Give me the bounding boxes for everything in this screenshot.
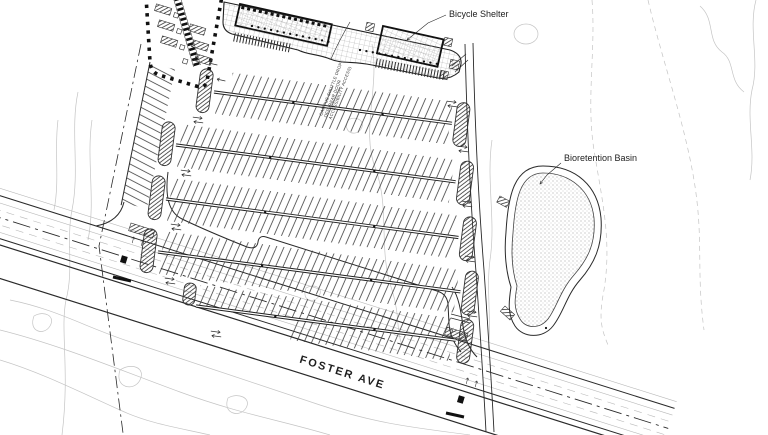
traffic-arrow <box>170 223 182 232</box>
bench-marker <box>446 413 464 417</box>
pedestrian-arrow <box>474 380 479 387</box>
parking-island <box>195 68 214 113</box>
bicycle-shelter-label: Bicycle Shelter <box>449 9 509 19</box>
traffic-arrow <box>180 169 192 178</box>
traffic-arrow <box>217 77 226 82</box>
site-plan-drawing: FOSTER AVE <box>0 0 768 435</box>
bench-marker <box>113 277 131 281</box>
basin-inlet <box>500 306 514 320</box>
sign-marker <box>457 395 465 403</box>
plaza-bicycle-shelter <box>223 2 461 80</box>
bioretention-basin <box>497 166 602 335</box>
site-plan-sheet: FOSTER AVE <box>0 0 768 435</box>
traffic-arrow <box>192 116 204 125</box>
parking-island <box>456 160 475 205</box>
sign-marker <box>120 255 128 263</box>
pedestrian-arrow <box>465 377 470 384</box>
bioretention-basin-label: Bioretention Basin <box>564 153 637 163</box>
basin-inlet <box>497 196 510 207</box>
crosswalk <box>129 223 155 238</box>
parking-field <box>139 61 479 364</box>
parking-island <box>182 282 197 305</box>
parking-island <box>456 319 475 364</box>
covered-walkway <box>177 0 197 66</box>
traffic-arrow <box>210 330 222 339</box>
traffic-arrow <box>164 277 176 286</box>
parking-island <box>460 270 479 315</box>
